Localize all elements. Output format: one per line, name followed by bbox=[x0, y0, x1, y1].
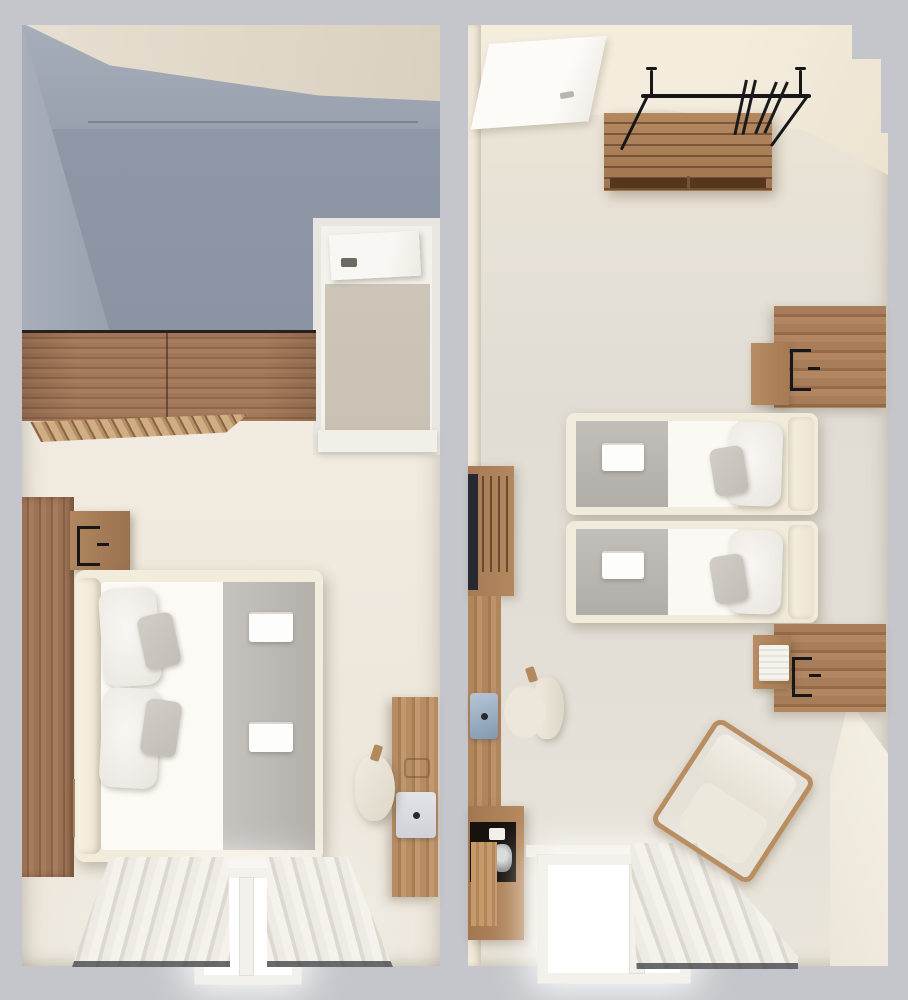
tv-screen bbox=[468, 474, 478, 590]
bench-shelf-divider bbox=[687, 176, 690, 190]
wall-notch bbox=[881, 25, 908, 133]
wall-lamp-icon bbox=[77, 526, 100, 566]
wall-lamp-icon bbox=[792, 657, 812, 697]
folded-towel bbox=[602, 551, 644, 579]
bathroom-door bbox=[329, 231, 421, 281]
clothes-rack-post bbox=[799, 70, 802, 96]
clothes-rack-rail bbox=[641, 94, 811, 98]
laptop bbox=[470, 693, 498, 739]
desk-grommet bbox=[404, 758, 430, 778]
coffee-cup bbox=[489, 828, 505, 840]
bed-headboard bbox=[788, 417, 814, 511]
folded-towel bbox=[602, 443, 644, 471]
bathroom-exit-threshold bbox=[318, 430, 437, 452]
clothes-rack-mount bbox=[646, 67, 657, 70]
book bbox=[759, 645, 789, 681]
double-bed bbox=[75, 570, 323, 862]
bed-cushion bbox=[139, 698, 182, 758]
wood-headboard-wall bbox=[22, 497, 74, 877]
desk-chair-seat bbox=[504, 686, 546, 738]
entry-door bbox=[471, 36, 607, 130]
wardrobe bbox=[22, 333, 316, 421]
bed-headboard bbox=[77, 578, 101, 854]
folded-towel bbox=[249, 722, 293, 752]
terrace-floor-edge bbox=[88, 121, 418, 123]
folded-towel bbox=[249, 612, 293, 642]
wall-lamp-icon bbox=[790, 349, 811, 391]
media-cabinet-slats bbox=[482, 476, 508, 572]
clothes-rack-mount bbox=[795, 67, 806, 70]
window-mullion bbox=[240, 878, 253, 975]
wardrobe-door-seam bbox=[166, 333, 168, 421]
wall-shelf bbox=[751, 343, 789, 405]
bed-cushion bbox=[708, 445, 749, 498]
twin-bed-top bbox=[566, 413, 818, 515]
laptop bbox=[396, 792, 436, 838]
bed-headboard bbox=[788, 525, 814, 619]
twin-bed-bottom bbox=[566, 521, 818, 623]
bed-cushion bbox=[708, 553, 749, 606]
bathroom-floor bbox=[325, 284, 430, 430]
minibar-box bbox=[471, 842, 497, 926]
bathroom-door-handle bbox=[341, 258, 357, 267]
floor-plan-render bbox=[0, 0, 908, 1000]
desk-chair bbox=[355, 755, 395, 821]
clothes-rack-post bbox=[650, 70, 653, 96]
